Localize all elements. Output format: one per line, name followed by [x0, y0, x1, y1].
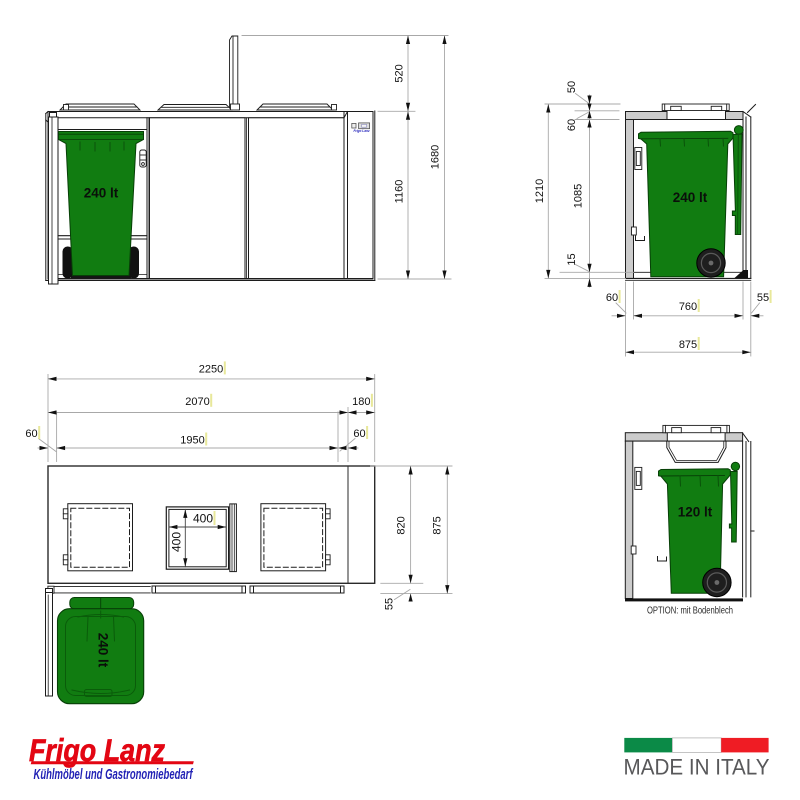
- svg-text:240 lt: 240 lt: [84, 186, 119, 201]
- svg-text:760: 760: [679, 301, 697, 313]
- svg-text:OPTION: mit Bodenblech: OPTION: mit Bodenblech: [647, 605, 733, 617]
- svg-text:60: 60: [566, 119, 578, 131]
- svg-text:1210: 1210: [534, 179, 546, 203]
- svg-text:55: 55: [384, 598, 396, 610]
- svg-text:240 lt: 240 lt: [96, 633, 111, 668]
- svg-text:55: 55: [757, 292, 769, 304]
- svg-text:60: 60: [606, 292, 618, 304]
- svg-text:1085: 1085: [573, 184, 585, 208]
- svg-text:1160: 1160: [394, 180, 406, 204]
- svg-text:820: 820: [396, 516, 408, 534]
- svg-text:400: 400: [193, 512, 213, 526]
- svg-text:MADE IN ITALY: MADE IN ITALY: [624, 755, 770, 780]
- svg-text:2070: 2070: [185, 396, 209, 408]
- svg-text:875: 875: [432, 516, 444, 534]
- svg-text:120 lt: 120 lt: [678, 505, 713, 520]
- svg-text:875: 875: [679, 339, 697, 351]
- svg-text:1950: 1950: [180, 435, 204, 447]
- svg-text:240 lt: 240 lt: [673, 190, 708, 205]
- svg-text:Kühlmöbel und Gastronomiebedar: Kühlmöbel und Gastronomiebedarf: [34, 767, 194, 783]
- svg-text:60: 60: [353, 428, 365, 440]
- svg-text:400: 400: [170, 532, 184, 552]
- svg-text:50: 50: [566, 81, 578, 93]
- svg-text:180: 180: [352, 396, 370, 408]
- svg-text:60: 60: [25, 428, 37, 440]
- svg-text:Frigo Lanz: Frigo Lanz: [353, 129, 370, 133]
- svg-text:520: 520: [394, 64, 406, 82]
- svg-text:15: 15: [566, 253, 578, 265]
- svg-text:1680: 1680: [430, 145, 442, 169]
- svg-text:2250: 2250: [199, 363, 223, 375]
